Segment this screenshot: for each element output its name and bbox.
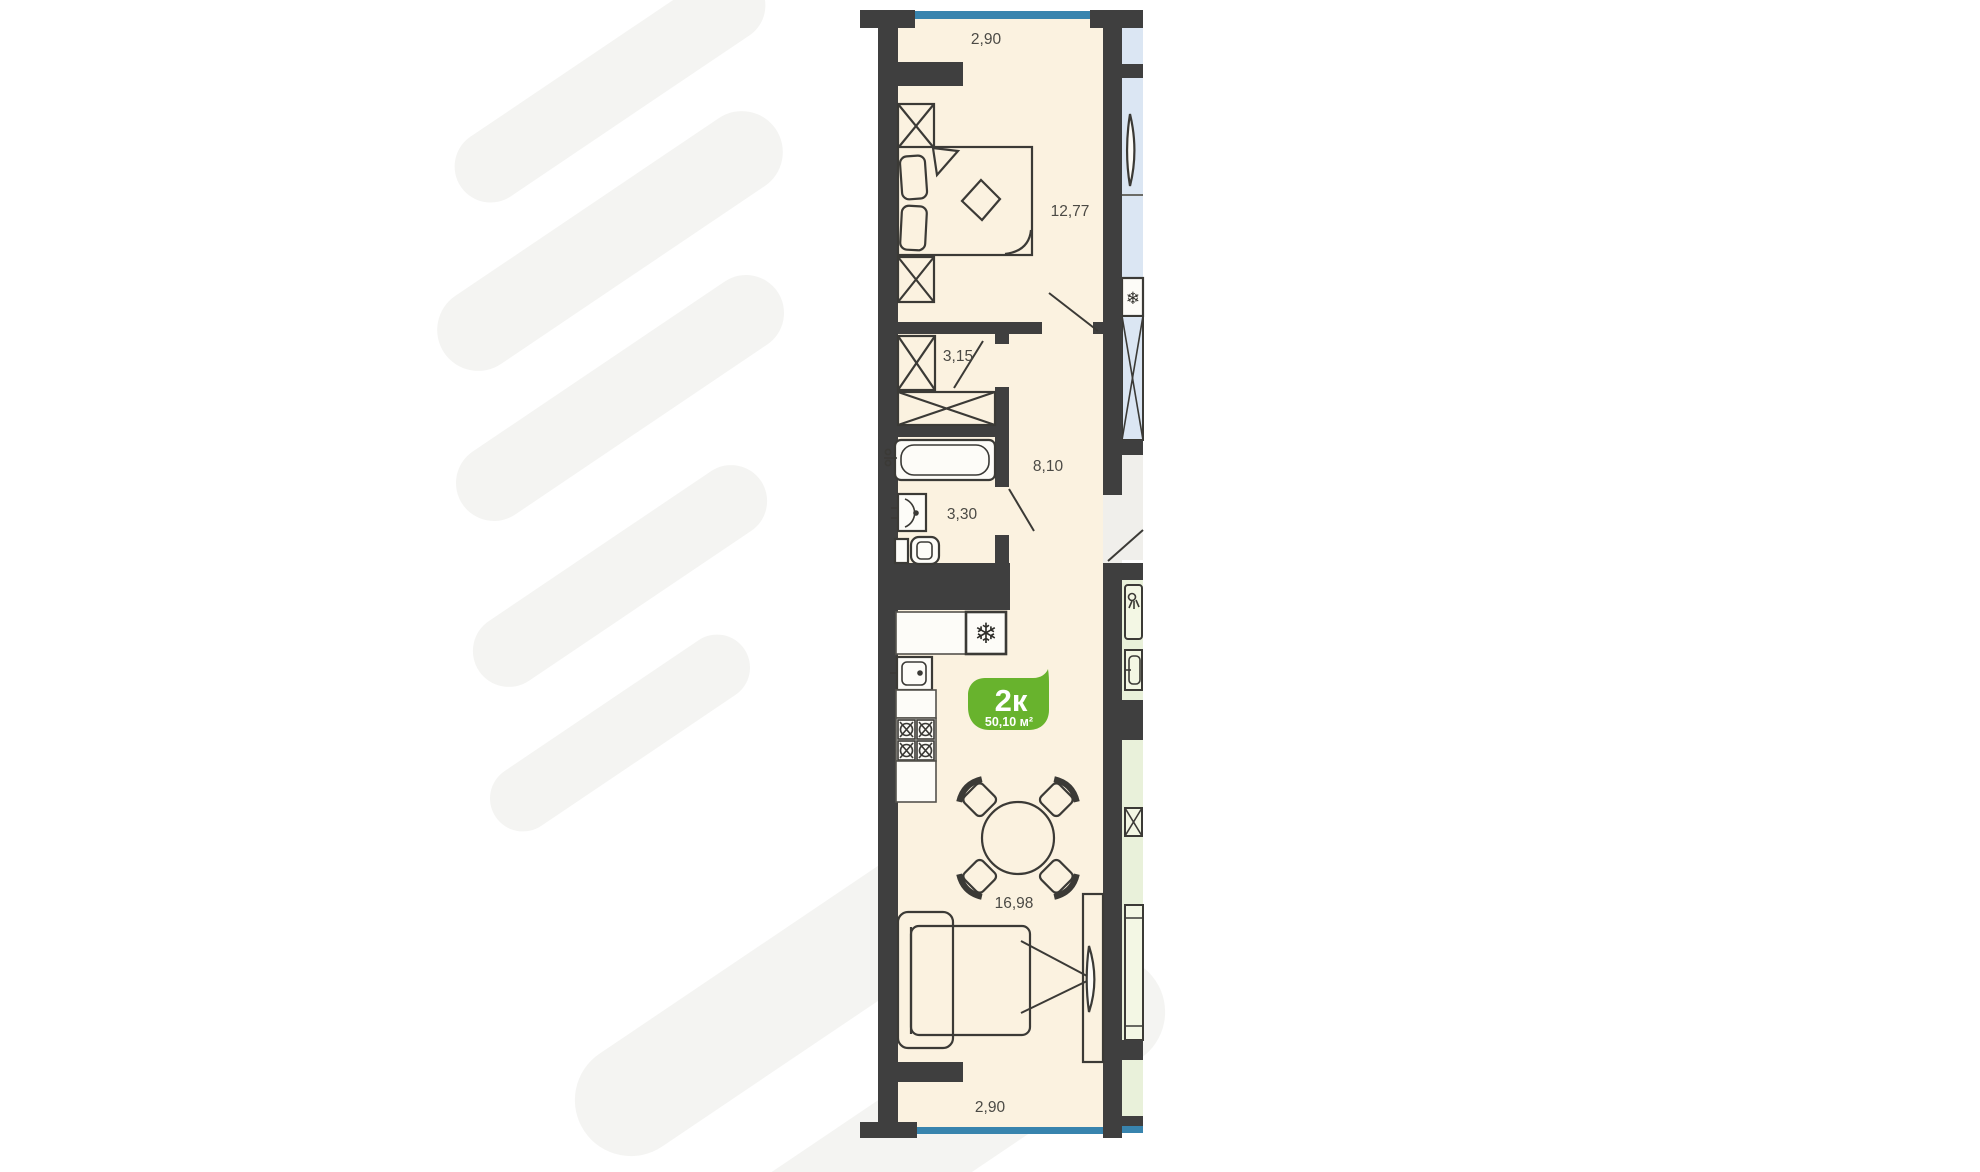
kitchen-counter	[896, 761, 936, 802]
bathroom-area-label: 3,30	[947, 506, 978, 523]
adjacent-stove-icon	[1125, 808, 1142, 836]
sofa-icon	[898, 912, 1030, 1048]
living-area-label: 16,98	[995, 895, 1034, 912]
kitchen-sink-icon	[890, 657, 932, 690]
stove-icon	[896, 718, 936, 761]
bed-icon	[898, 147, 1032, 255]
window-adjacent-bottom	[1122, 1126, 1143, 1133]
adjacent-sink-icon	[1125, 650, 1142, 690]
floorplan-page: ❄	[0, 0, 1980, 1172]
toilet-icon	[895, 537, 939, 564]
corridor-area-label: 8,10	[1033, 458, 1064, 475]
adjacent-room-bottom	[1122, 1060, 1143, 1116]
fridge-snowflake-icon: ❄	[974, 617, 997, 650]
kitchen-counter	[896, 690, 936, 718]
bedroom-area-label: 12,77	[1051, 203, 1090, 220]
adjacent-wardrobe-icon	[1122, 316, 1143, 440]
adjacent-shower-icon	[1125, 585, 1142, 639]
unit-area-label: 50,10 м²	[985, 715, 1033, 729]
fridge-icon: ❄	[966, 612, 1006, 654]
dimension-top-width: 2,90	[971, 31, 1002, 48]
window-bottom	[917, 1127, 1103, 1134]
window-top	[915, 11, 1090, 19]
adjacent-counter-icon	[1125, 905, 1143, 1040]
hall-area-label: 3,15	[943, 348, 973, 365]
unit-type-label: 2к	[995, 683, 1028, 718]
floorplan: ❄	[0, 0, 1980, 1172]
entrance-doorway	[1103, 495, 1122, 563]
stair-landing	[1122, 455, 1143, 560]
adjacent-fridge-snowflake-icon: ❄	[1126, 289, 1140, 309]
bathtub-icon	[884, 440, 995, 480]
dimension-bottom-width: 2,90	[975, 1099, 1006, 1116]
